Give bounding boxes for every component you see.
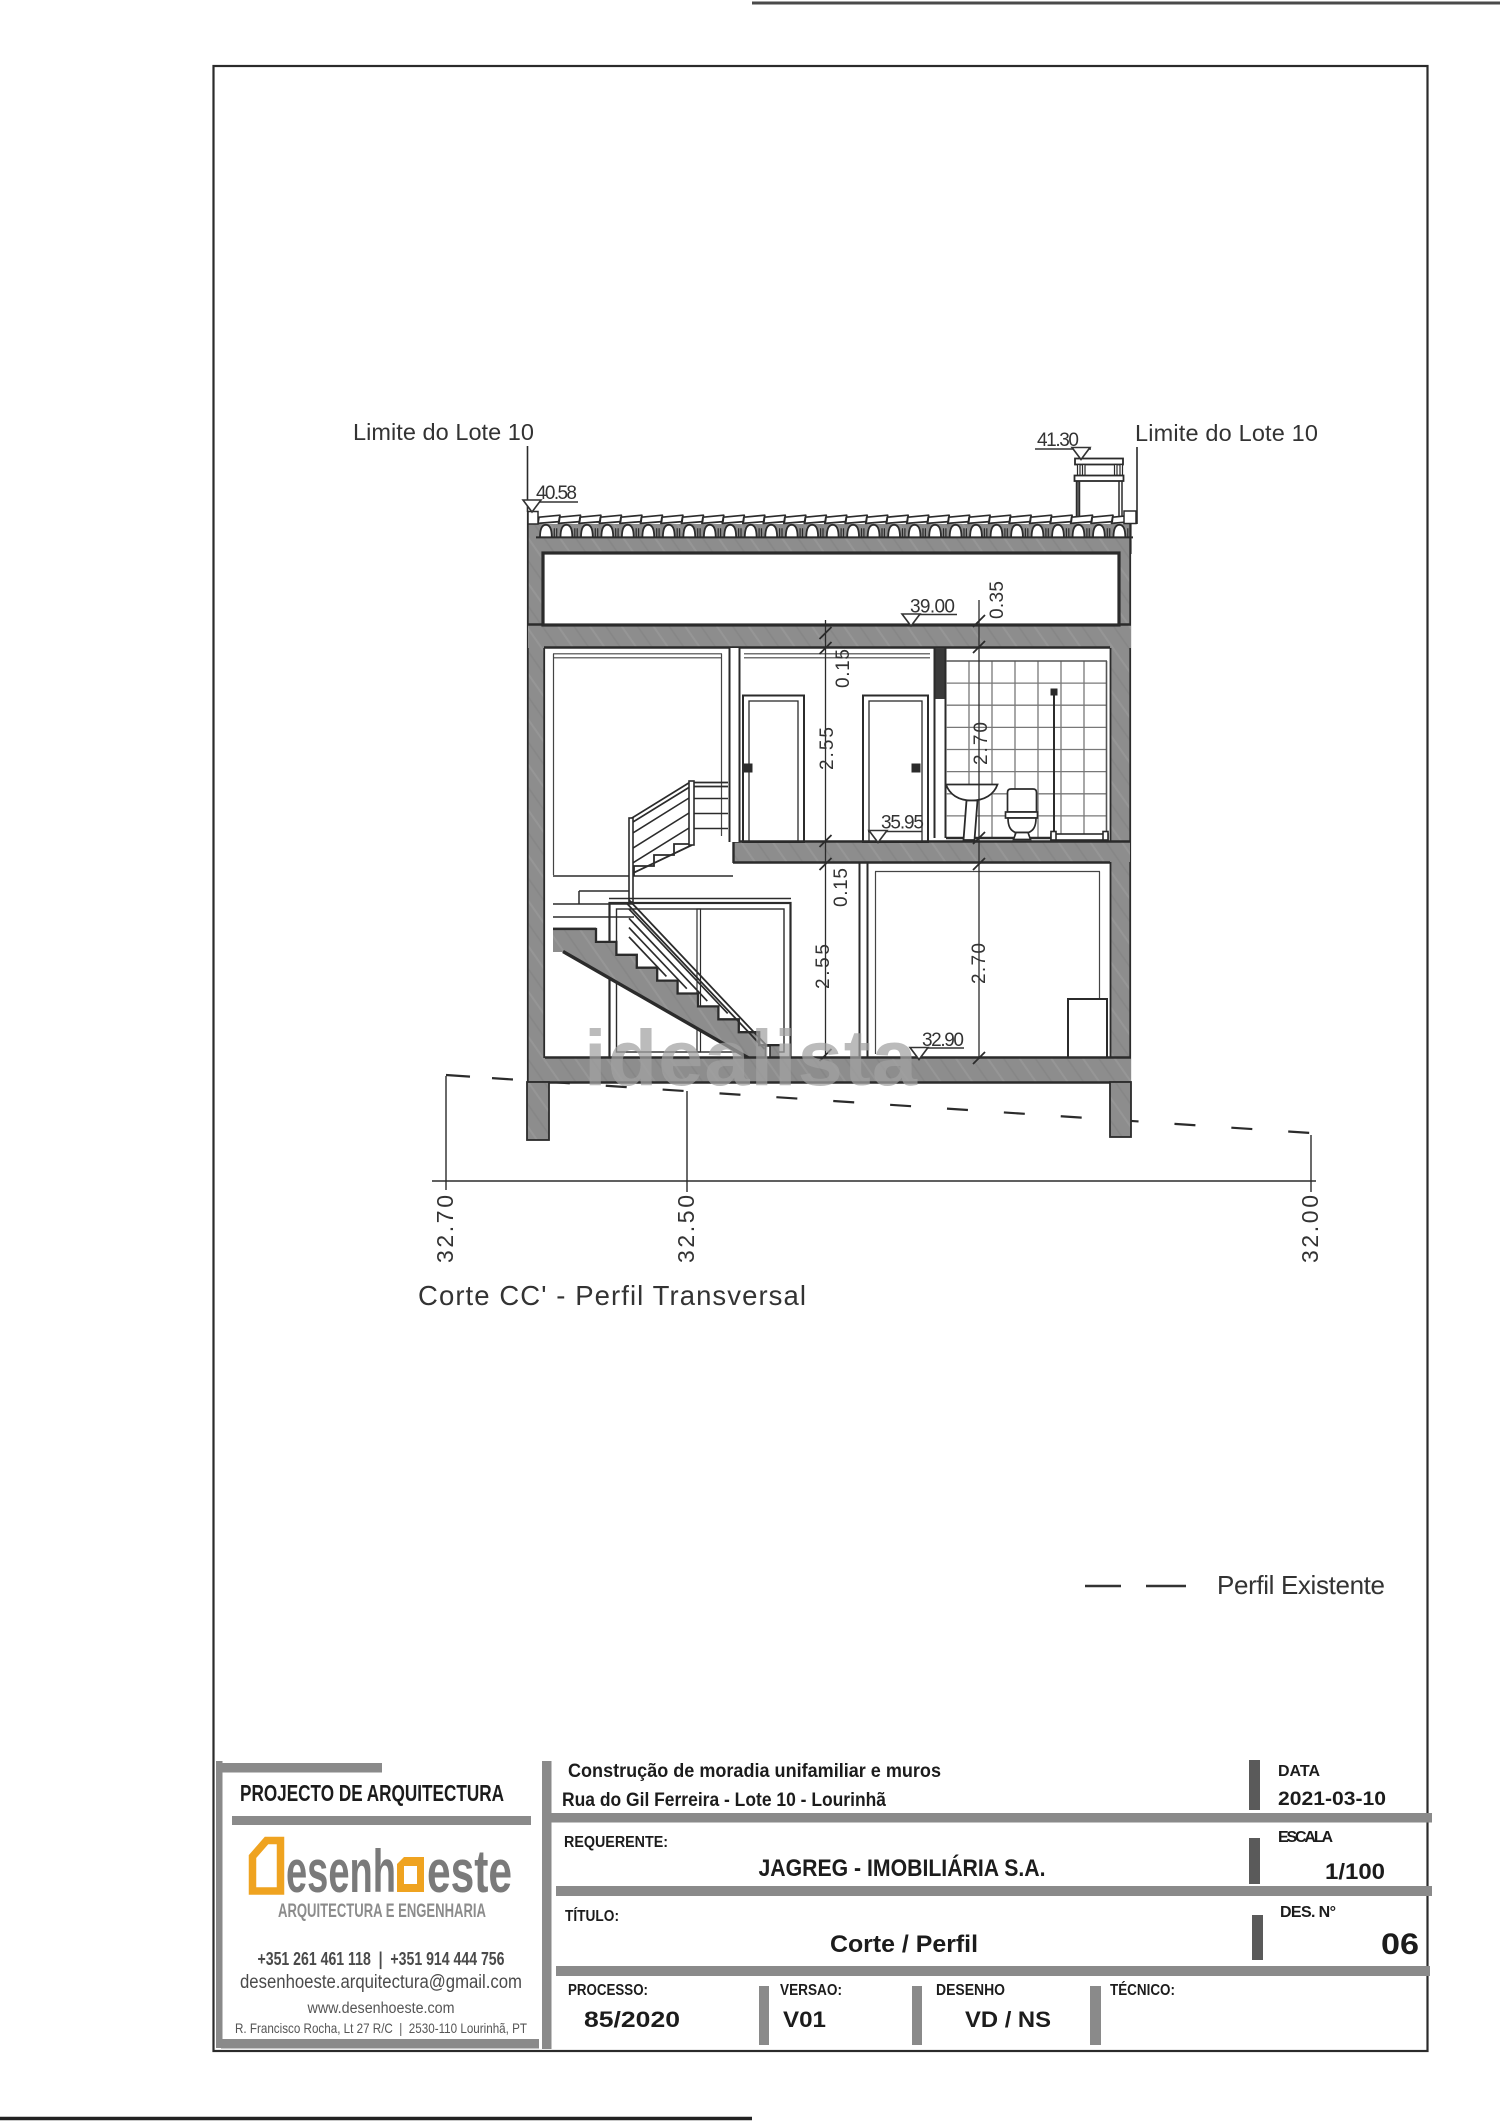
svg-text:PROCESSO:: PROCESSO:: [568, 1982, 648, 1999]
svg-text:40.58: 40.58: [536, 483, 577, 504]
svg-text:V01: V01: [783, 2007, 826, 2032]
svg-text:DES. N°: DES. N°: [1280, 1904, 1336, 1921]
svg-text:Perfil Existente: Perfil Existente: [1217, 1570, 1385, 1600]
svg-text:desenhoeste.arquitectura@gmail: desenhoeste.arquitectura@gmail.com: [240, 1972, 522, 1993]
svg-text:DESENHO: DESENHO: [936, 1982, 1005, 1999]
svg-text:85/2020: 85/2020: [584, 2007, 680, 2032]
svg-text:2.55: 2.55: [817, 727, 838, 770]
svg-text:1/100: 1/100: [1325, 1859, 1385, 1884]
svg-text:R. Francisco Rocha, Lt 27 R/C: R. Francisco Rocha, Lt 27 R/C | 2530-110…: [235, 2020, 527, 2036]
svg-text:+351 261 461 118 | +351 914: +351 261 461 118 | +351 914 444 756: [258, 1949, 505, 1969]
svg-text:este: este: [427, 1838, 512, 1905]
svg-text:Rua do Gil Ferreira - Lote 10: Rua do Gil Ferreira - Lote 10 - Lourinhã: [562, 1790, 886, 1811]
svg-text:ESCALA: ESCALA: [1278, 1829, 1333, 1846]
svg-text:Corte CC' - Perfil Transversal: Corte CC' - Perfil Transversal: [418, 1280, 806, 1311]
svg-text:0.15: 0.15: [833, 649, 854, 688]
svg-text:PROJECTO DE ARQUITECTURA: PROJECTO DE ARQUITECTURA: [240, 1780, 504, 1806]
svg-text:TÍTULO:: TÍTULO:: [565, 1906, 619, 1925]
svg-text:0.35: 0.35: [987, 581, 1008, 619]
svg-text:2.70: 2.70: [971, 722, 992, 765]
svg-text:32.70: 32.70: [432, 1195, 458, 1263]
svg-text:REQUERENTE:: REQUERENTE:: [564, 1834, 668, 1851]
svg-text:idealista: idealista: [584, 1013, 918, 1102]
svg-text:www.desenhoeste.com: www.desenhoeste.com: [307, 2000, 455, 2017]
svg-text:VERSAO:: VERSAO:: [780, 1982, 842, 1999]
svg-text:Corte / Perfil: Corte / Perfil: [830, 1931, 978, 1958]
svg-text:06: 06: [1381, 1928, 1419, 1961]
svg-text:esenh: esenh: [286, 1838, 396, 1905]
svg-text:Limite do Lote 10: Limite do Lote 10: [353, 419, 534, 445]
svg-text:0.15: 0.15: [831, 868, 852, 907]
svg-text:Limite do Lote 10: Limite do Lote 10: [1135, 420, 1318, 446]
svg-text:32.50: 32.50: [673, 1195, 699, 1263]
svg-text:Construção de moradia unifamil: Construção de moradia unifamiliar e muro…: [568, 1761, 941, 1782]
svg-text:2021-03-10: 2021-03-10: [1278, 1789, 1386, 1810]
svg-text:VD / NS: VD / NS: [965, 2007, 1051, 2032]
svg-text:2.70: 2.70: [969, 943, 990, 984]
svg-text:TÉCNICO:: TÉCNICO:: [1110, 1980, 1175, 1999]
svg-text:ARQUITECTURA E ENGENHARIA: ARQUITECTURA E ENGENHARIA: [278, 1901, 486, 1922]
svg-text:32.00: 32.00: [1297, 1195, 1323, 1263]
svg-text:JAGREG - IMOBILIÁRIA S.A.: JAGREG - IMOBILIÁRIA S.A.: [759, 1854, 1046, 1882]
svg-text:DATA: DATA: [1278, 1763, 1320, 1780]
svg-text:2.55: 2.55: [813, 944, 834, 989]
